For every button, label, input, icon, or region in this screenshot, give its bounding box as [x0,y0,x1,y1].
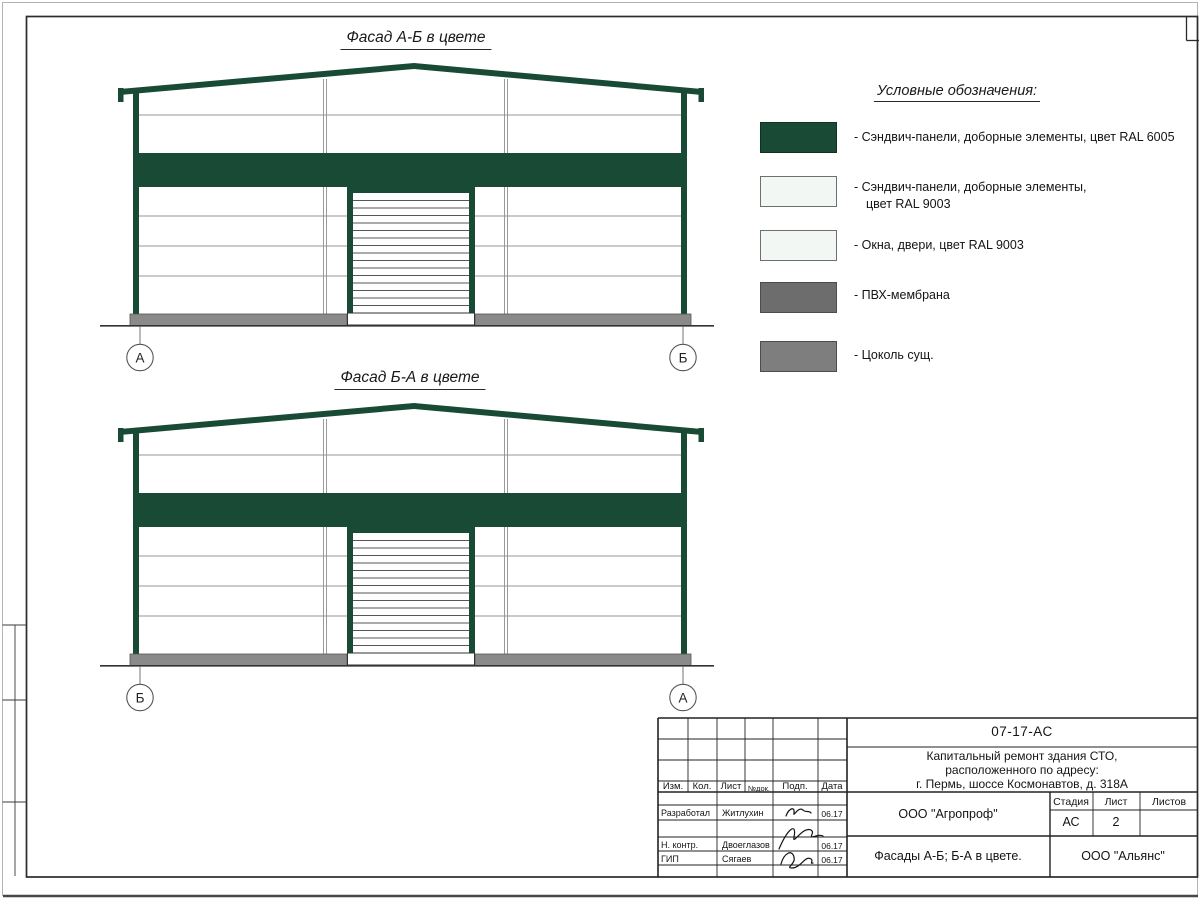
col-header-izm: Изм. [663,781,683,792]
legend-label-plinth: - Цоколь сущ. [854,348,934,363]
row-ncontrol-name: Двоеглазов [722,840,770,850]
drawing-sheet: А Б Б А [0,0,1200,900]
facade-ba-drawing [100,403,714,711]
drawing-title: Фасады А-Б; Б-А в цвете. [874,849,1022,863]
legend-swatch-pvc-membrane [760,282,837,313]
col-header-podp: Подп. [782,781,807,792]
signature-dvoeglazov [779,829,823,849]
legend-swatch-ral6005 [760,122,837,153]
row-developer-date: 06.17 [821,809,842,819]
legend-label-windows-doors: - Окна, двери, цвет RAL 9003 [854,238,1024,253]
legend-title: Условные обозначения: [874,83,1040,102]
legend-label-pvc-membrane: - ПВХ-мембрана [854,288,950,303]
side-stamp [3,625,27,876]
legend-label-ral9003-panels-line2: цвет RAL 9003 [866,197,951,212]
col-header-data: Дата [821,781,842,792]
facade-ab-title: Фасад А-Б в цвете [340,29,491,50]
row-gip-role: ГИП [661,854,679,864]
axis-mark-b-right-top: Б [679,350,688,365]
legend-swatch-plinth [760,341,837,372]
col-header-list: Лист [721,781,742,792]
legend-swatch-ral9003-panels [760,176,837,207]
sheets-label: Листов [1152,796,1186,808]
stage-value: АС [1062,815,1079,829]
legend-label-ral9003-panels-line1: - Сэндвич-панели, доборные элементы, [854,180,1087,195]
row-ncontrol-role: Н. контр. [661,840,698,850]
axis-mark-a-right-bottom: А [678,690,687,705]
axis-mark-a-left-top: А [135,350,144,365]
project-title-line3: г. Пермь, шоссе Космонавтов, д. 318А [916,777,1128,791]
org-name: ООО "Агропроф" [898,807,997,821]
row-developer-name: Житлухин [722,808,764,818]
facade-ab-drawing [100,63,714,371]
project-title-line1: Капитальный ремонт здания СТО, [927,749,1118,763]
axis-mark-b-left-bottom: Б [136,690,145,705]
stage-label: Стадия [1053,796,1089,808]
signatures [779,809,823,868]
row-ncontrol-date: 06.17 [821,841,842,851]
sheet-value: 2 [1113,815,1120,829]
project-title-line2: расположенного по адресу: [945,763,1099,777]
col-header-kol: Кол. [693,781,712,792]
signature-syagaev [781,853,813,868]
row-gip-date: 06.17 [821,855,842,865]
contractor-name: ООО "Альянс" [1081,849,1165,863]
col-header-ndok: №док. [748,784,770,793]
signature-zhitlukhin [786,809,811,816]
sheet-label: Лист [1105,796,1128,808]
facade-ba-title: Фасад Б-А в цвете [334,369,485,390]
legend-swatch-windows-doors [760,230,837,261]
row-gip-name: Сягаев [722,854,751,864]
doc-code: 07-17-АС [991,724,1052,739]
row-developer-role: Разработал [661,808,710,818]
legend-label-ral6005: - Сэндвич-панели, доборные элементы, цве… [854,130,1175,145]
